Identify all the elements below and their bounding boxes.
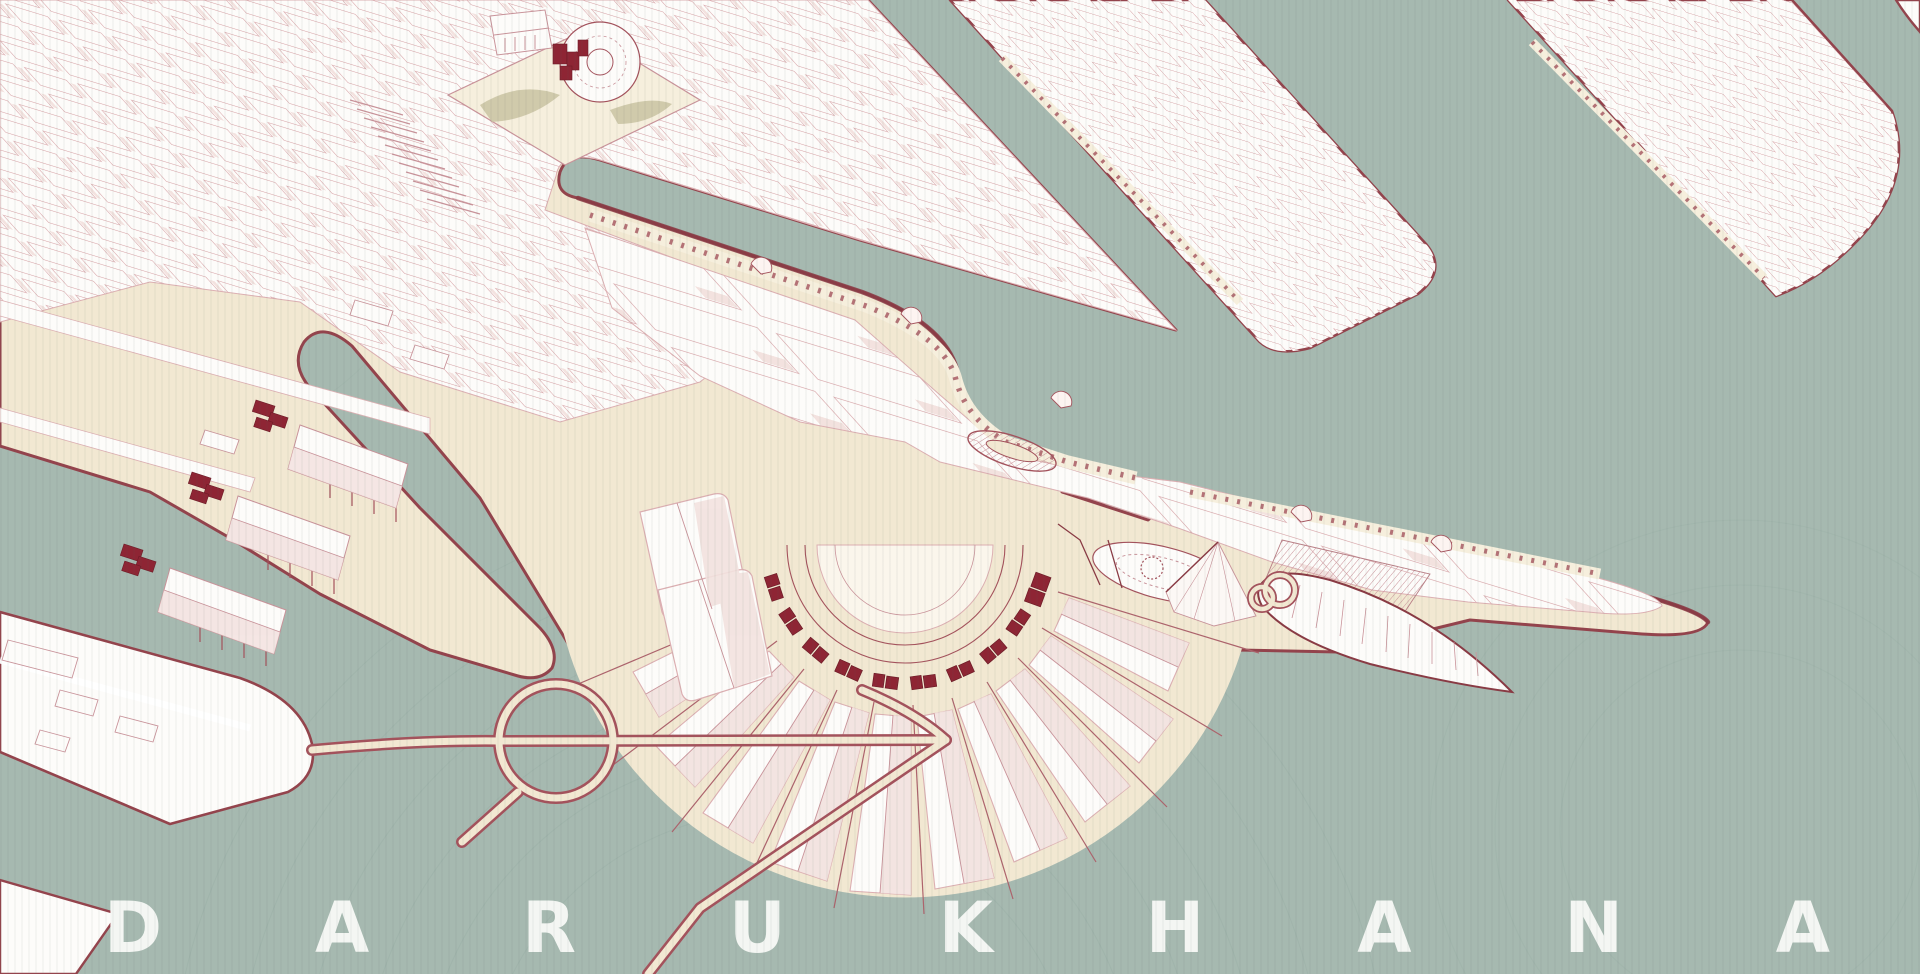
darukhana-map: D A R U K H A N A xyxy=(0,0,1920,974)
map-illustration xyxy=(0,0,1920,974)
helipad-circle xyxy=(1141,557,1163,579)
gable-hall xyxy=(490,10,552,55)
